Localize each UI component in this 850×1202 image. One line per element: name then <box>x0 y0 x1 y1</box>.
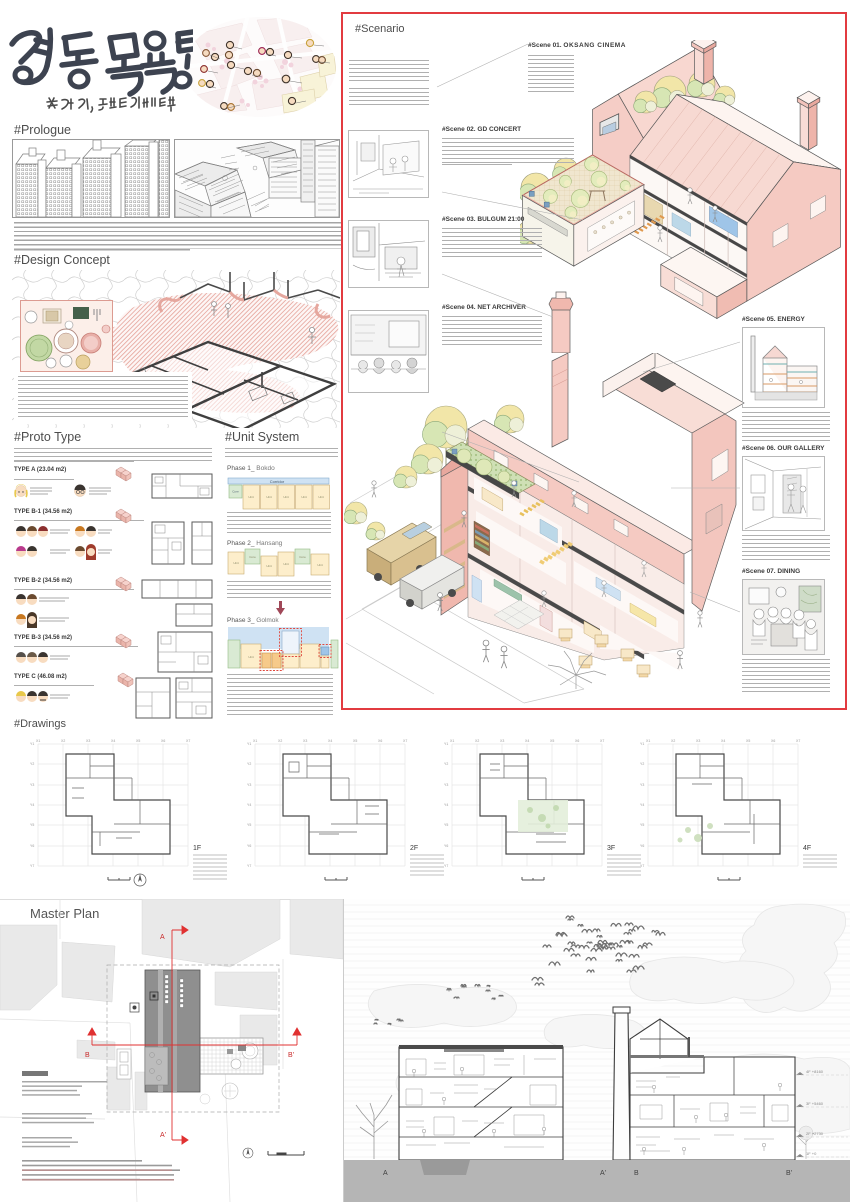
svg-text:Y2: Y2 <box>247 762 251 766</box>
svg-text:Y7: Y7 <box>444 864 448 868</box>
svg-text:X4: X4 <box>111 739 115 743</box>
svg-text:Y6: Y6 <box>640 844 644 848</box>
svg-text:X6: X6 <box>161 739 165 743</box>
svg-text:B': B' <box>288 1052 294 1059</box>
svg-text:Y5: Y5 <box>444 823 448 827</box>
svg-text:X2: X2 <box>278 739 282 743</box>
svg-text:Y5: Y5 <box>30 823 34 827</box>
svg-text:Unit: Unit <box>248 655 254 659</box>
svg-text:X3: X3 <box>500 739 504 743</box>
svg-text:A': A' <box>160 1132 166 1139</box>
svg-text:B': B' <box>786 1170 792 1177</box>
svg-text:4F: 4F <box>803 845 811 852</box>
svg-text:X3: X3 <box>696 739 700 743</box>
svg-text:X2: X2 <box>671 739 675 743</box>
svg-text:Y2: Y2 <box>444 762 448 766</box>
svg-text:Y6: Y6 <box>444 844 448 848</box>
svg-text:Unit: Unit <box>248 495 254 499</box>
svg-text:Unit: Unit <box>266 564 272 568</box>
svg-text:Unit: Unit <box>266 495 272 499</box>
svg-text:X1: X1 <box>36 739 40 743</box>
svg-text:X6: X6 <box>575 739 579 743</box>
svg-text:Y1: Y1 <box>444 742 448 746</box>
svg-text:3F +5460: 3F +5460 <box>806 1101 824 1106</box>
svg-text:X1: X1 <box>253 739 257 743</box>
svg-text:X5: X5 <box>746 739 750 743</box>
svg-text:X7: X7 <box>600 739 604 743</box>
svg-text:3F: 3F <box>607 845 615 852</box>
svg-text:X4: X4 <box>525 739 529 743</box>
svg-text:Y3: Y3 <box>247 783 251 787</box>
svg-text:X2: X2 <box>475 739 479 743</box>
svg-text:Unit: Unit <box>301 495 307 499</box>
svg-text:Unit: Unit <box>318 495 324 499</box>
svg-text:Unit: Unit <box>283 562 289 566</box>
svg-text:A': A' <box>600 1170 606 1177</box>
svg-text:X2: X2 <box>61 739 65 743</box>
svg-text:Y6: Y6 <box>247 844 251 848</box>
svg-text:X1: X1 <box>450 739 454 743</box>
svg-text:Y3: Y3 <box>30 783 34 787</box>
svg-text:X5: X5 <box>136 739 140 743</box>
svg-text:X3: X3 <box>303 739 307 743</box>
svg-text:X7: X7 <box>186 739 190 743</box>
svg-text:Core: Core <box>232 490 239 494</box>
svg-text:1F +0: 1F +0 <box>806 1151 817 1156</box>
svg-text:Unit: Unit <box>283 495 289 499</box>
svg-text:Y7: Y7 <box>640 864 644 868</box>
svg-text:X7: X7 <box>796 739 800 743</box>
svg-text:Y1: Y1 <box>640 742 644 746</box>
svg-text:Y7: Y7 <box>30 864 34 868</box>
svg-text:Core: Core <box>249 555 256 559</box>
svg-text:Y4: Y4 <box>444 803 448 807</box>
svg-text:X5: X5 <box>550 739 554 743</box>
svg-text:Y2: Y2 <box>30 762 34 766</box>
svg-text:Unit: Unit <box>233 561 239 565</box>
svg-text:Y4: Y4 <box>247 803 251 807</box>
svg-text:Y5: Y5 <box>247 823 251 827</box>
svg-text:Y5: Y5 <box>640 823 644 827</box>
svg-text:2F: 2F <box>410 845 418 852</box>
svg-text:Y4: Y4 <box>30 803 34 807</box>
svg-text:4F +8160: 4F +8160 <box>806 1069 824 1074</box>
svg-text:X4: X4 <box>721 739 725 743</box>
svg-text:X4: X4 <box>328 739 332 743</box>
svg-text:2F +2730: 2F +2730 <box>806 1131 824 1136</box>
svg-text:X6: X6 <box>378 739 382 743</box>
svg-text:X6: X6 <box>771 739 775 743</box>
svg-text:X5: X5 <box>353 739 357 743</box>
svg-text:A: A <box>383 1170 388 1177</box>
svg-text:Y7: Y7 <box>247 864 251 868</box>
svg-text:Y4: Y4 <box>640 803 644 807</box>
svg-text:Y6: Y6 <box>30 844 34 848</box>
svg-text:Core: Core <box>299 555 306 559</box>
svg-text:X1: X1 <box>646 739 650 743</box>
svg-text:Y1: Y1 <box>247 742 251 746</box>
svg-text:Y3: Y3 <box>444 783 448 787</box>
svg-text:B: B <box>634 1170 639 1177</box>
svg-text:Corridor: Corridor <box>270 479 285 484</box>
svg-text:1F: 1F <box>193 845 201 852</box>
svg-text:B: B <box>85 1052 90 1059</box>
svg-text:X3: X3 <box>86 739 90 743</box>
svg-text:Unit: Unit <box>317 563 323 567</box>
svg-text:Y2: Y2 <box>640 762 644 766</box>
svg-text:Y1: Y1 <box>30 742 34 746</box>
svg-text:A: A <box>160 934 165 941</box>
svg-text:Y3: Y3 <box>640 783 644 787</box>
svg-text:X7: X7 <box>403 739 407 743</box>
